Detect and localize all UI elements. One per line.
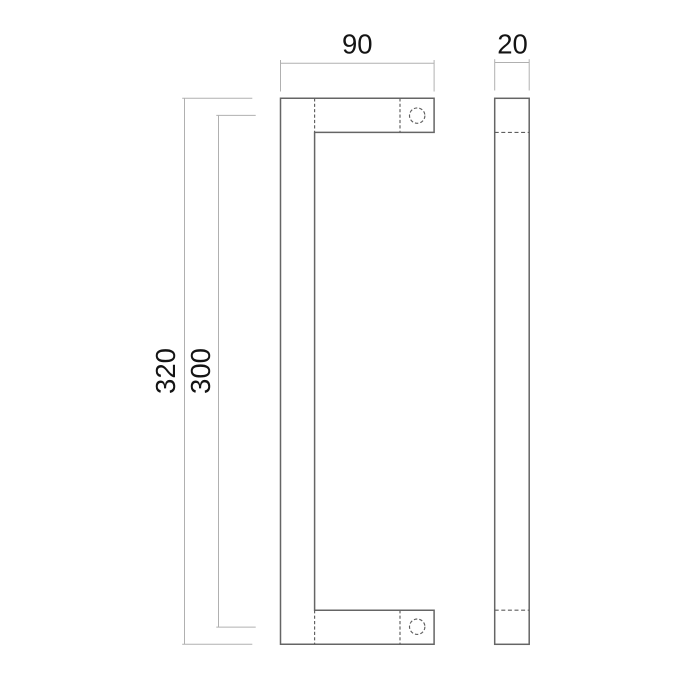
svg-text:300: 300 [185, 348, 216, 394]
svg-text:20: 20 [497, 29, 528, 60]
svg-text:320: 320 [150, 348, 181, 394]
svg-text:90: 90 [342, 29, 373, 60]
